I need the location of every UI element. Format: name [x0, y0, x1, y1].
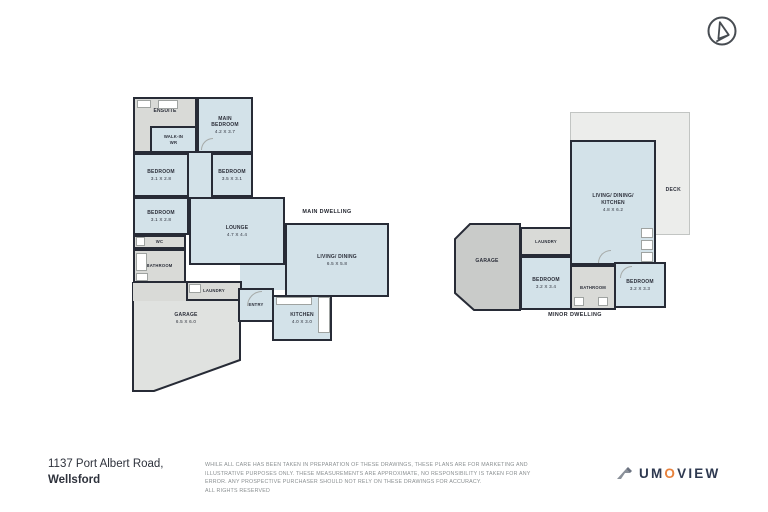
- floor-plan-page: ENSUITE WALK-IN WR MAIN BEDROOM 4.2 X 3.…: [0, 0, 768, 512]
- minor-garage-shape: [455, 224, 520, 310]
- logo-text: UMOVIEW: [639, 466, 720, 481]
- umoview-logo-icon: [617, 467, 635, 480]
- minor-dwelling-title: MINOR DWELLING: [538, 312, 612, 318]
- bathtub-fixture: [136, 253, 147, 271]
- room-bedroom-2: BEDROOM 3.5 X 3.1: [211, 153, 253, 197]
- minor-bath-fixture-2: [598, 297, 608, 306]
- ensuite-sink-fixture: [137, 100, 151, 108]
- room-minor-bedroom-1: BEDROOM 3.2 X 3.4: [520, 256, 572, 310]
- room-living-dining: LIVING/ DINING 6.5 X 5.8: [285, 223, 389, 297]
- property-address: 1137 Port Albert Road, Wellsford: [48, 457, 164, 488]
- room-minor-garage-label: GARAGE: [460, 258, 514, 264]
- deck-label: DECK: [666, 187, 681, 193]
- minor-kitchen-fixture-2: [641, 240, 653, 250]
- address-line-2: Wellsford: [48, 473, 164, 489]
- main-entry-hall: [240, 263, 287, 290]
- room-minor-bedroom-2: BEDROOM 3.2 X 3.3: [614, 262, 666, 308]
- main-hallway: [189, 151, 213, 199]
- kitchen-counter-fixture: [276, 297, 312, 305]
- room-bedroom-3: BEDROOM 3.1 X 2.8: [133, 197, 189, 235]
- minor-kitchen-fixture-3: [641, 252, 653, 262]
- room-garage-label: GARAGE 6.5 X 6.0: [154, 312, 218, 324]
- bathroom-sink-fixture: [136, 273, 148, 281]
- laundry-tub-fixture: [189, 284, 201, 293]
- kitchen-bench-fixture: [318, 297, 330, 333]
- main-service-hall: [133, 283, 186, 301]
- room-bedroom-1: BEDROOM 3.1 X 2.8: [133, 153, 189, 197]
- minor-bath-fixture-1: [574, 297, 584, 306]
- wc-toilet-fixture: [136, 237, 145, 246]
- room-lounge: LOUNGE 4.7 X 4.4: [189, 197, 285, 265]
- main-dwelling-title: MAIN DWELLING: [290, 209, 364, 215]
- room-walk-in-wardrobe: WALK-IN WR: [150, 126, 197, 153]
- compass-icon: [703, 12, 741, 50]
- address-line-1: 1137 Port Albert Road,: [48, 457, 164, 473]
- disclaimer-text: WHILE ALL CARE HAS BEEN TAKEN IN PREPARA…: [205, 461, 577, 496]
- ensuite-shower-fixture: [158, 100, 178, 109]
- room-minor-laundry: LAUNDRY: [520, 227, 572, 256]
- minor-kitchen-fixture-1: [641, 228, 653, 238]
- umoview-logo: UMOVIEW: [617, 466, 720, 481]
